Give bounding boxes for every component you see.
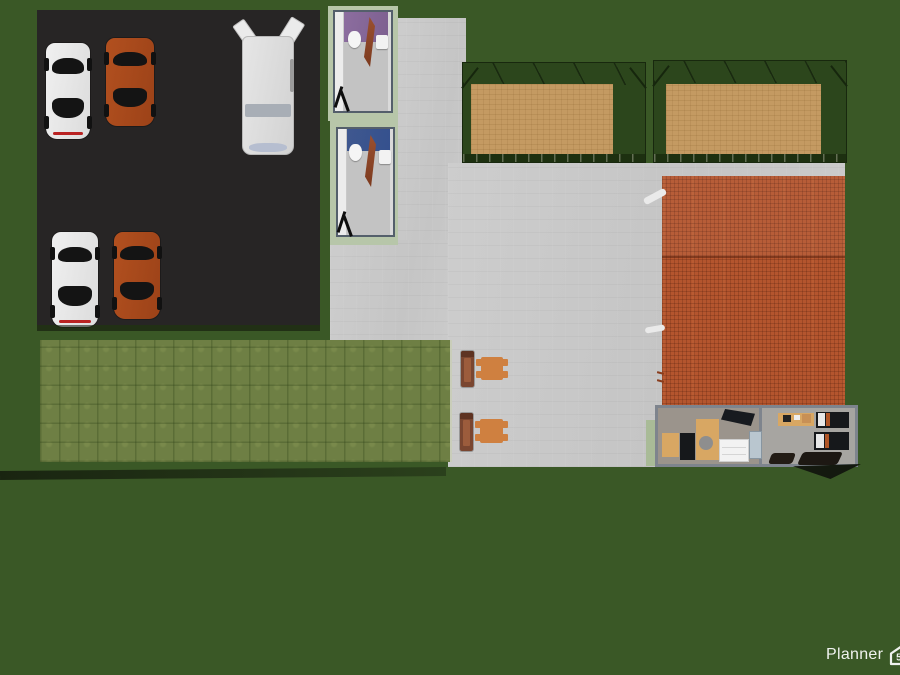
car-wheel (50, 305, 55, 318)
svg-text:5d: 5d (896, 653, 900, 664)
chair (502, 421, 508, 428)
sand-surface (666, 84, 821, 156)
white-sports-car-2[interactable] (52, 232, 98, 327)
toilet[interactable] (348, 31, 361, 48)
appliance[interactable] (680, 433, 695, 460)
office-sofa[interactable] (797, 452, 843, 465)
car-wheel (112, 297, 117, 310)
car-rear-window (52, 58, 84, 73)
van-body (242, 36, 294, 155)
sand-surface (471, 84, 613, 155)
chair (475, 421, 481, 428)
bathroom-wall-right (390, 129, 393, 235)
van-front-window (249, 143, 287, 153)
bench-seat (463, 420, 470, 446)
parking-lot-shadow (37, 325, 320, 331)
chair (476, 371, 482, 378)
car-wheel (87, 58, 92, 71)
chair (476, 359, 482, 366)
car-rear-window (58, 247, 91, 262)
car-wheel (151, 104, 156, 117)
car-windshield (120, 282, 153, 300)
fence-mesh (654, 61, 846, 83)
car-wheel (157, 246, 162, 259)
chair (475, 434, 481, 441)
car-rear-window (113, 52, 148, 66)
house-5d-icon: 5d (889, 644, 900, 666)
car-taillight (59, 320, 90, 323)
bathroom-purple[interactable] (333, 10, 393, 113)
car-wheel (104, 104, 109, 117)
sink[interactable] (379, 150, 391, 164)
van-side-trim (290, 59, 294, 92)
bathroom-wall-right (388, 12, 391, 111)
building-shadow (793, 464, 861, 479)
chair (502, 359, 508, 366)
roof-ridge (662, 256, 845, 258)
car-taillight (53, 132, 83, 135)
fence-posts (654, 154, 846, 162)
watermark: Planner 5d (826, 644, 900, 666)
office-desk[interactable] (778, 413, 814, 426)
fence-posts (463, 154, 645, 162)
orange-sports-car-2[interactable] (114, 232, 160, 319)
car-wheel (95, 247, 100, 260)
van-windshield (245, 104, 291, 116)
picnic-table-1[interactable] (481, 357, 503, 380)
car-windshield (113, 88, 148, 106)
bench-1[interactable] (461, 351, 474, 387)
toilet[interactable] (349, 144, 362, 161)
round-sink (699, 436, 713, 450)
white-dresser[interactable] (719, 439, 749, 462)
car-wheel (151, 52, 156, 65)
wardrobe-1[interactable] (816, 412, 849, 428)
white-cargo-van[interactable] (240, 18, 296, 155)
bench-backrest (461, 351, 474, 357)
car-wheel (157, 297, 162, 310)
wardrobe-2[interactable] (814, 432, 849, 450)
building-interior[interactable] (655, 405, 858, 467)
car-wheel (95, 305, 100, 318)
white-sports-car-1[interactable] (46, 43, 90, 139)
building-roof[interactable] (662, 176, 845, 408)
chair (502, 434, 508, 441)
scene-canvas[interactable]: Planner 5d (0, 0, 900, 675)
roof-upper-slope (662, 176, 845, 256)
office-chair[interactable] (768, 453, 796, 464)
chair (502, 371, 508, 378)
car-windshield (52, 98, 84, 118)
car-wheel (104, 52, 109, 65)
car-wheel (87, 116, 92, 129)
car-wheel (112, 246, 117, 259)
lawn-patch[interactable] (40, 340, 452, 462)
parking-lot[interactable] (37, 10, 320, 325)
bench-seat (464, 358, 471, 382)
car-wheel (50, 247, 55, 260)
building-pad-sliver (646, 420, 655, 466)
car-wheel (44, 116, 49, 129)
cabinet[interactable] (662, 433, 679, 457)
orange-sports-car-1[interactable] (106, 38, 154, 126)
sand-court-1[interactable] (462, 62, 646, 163)
bench-backrest (460, 413, 473, 419)
bathroom-blue[interactable] (336, 127, 395, 237)
concrete-path-lower[interactable] (330, 240, 466, 348)
lawn-shadow (0, 467, 446, 480)
wall-tv[interactable] (721, 409, 755, 426)
car-rear-window (120, 246, 153, 260)
fence-mesh (463, 63, 645, 85)
picnic-table-2[interactable] (480, 419, 503, 443)
bench-2[interactable] (460, 413, 473, 451)
car-wheel (44, 58, 49, 71)
sink[interactable] (376, 35, 388, 49)
sand-court-2[interactable] (653, 60, 847, 163)
watermark-brand-text: Planner (826, 646, 883, 664)
car-windshield (58, 286, 91, 306)
glass-door[interactable] (749, 431, 762, 459)
